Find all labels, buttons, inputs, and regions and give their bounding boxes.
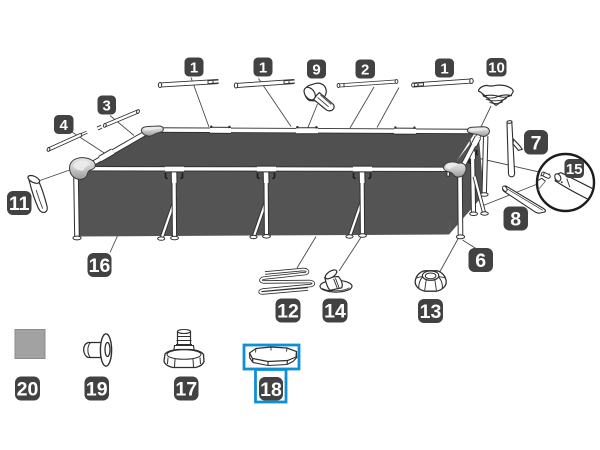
svg-text:1: 1 [190,59,198,76]
svg-text:16: 16 [89,255,111,277]
svg-text:20: 20 [17,379,39,401]
svg-text:9: 9 [312,61,320,78]
svg-text:10: 10 [488,60,505,77]
svg-text:11: 11 [9,193,30,215]
svg-text:18: 18 [260,379,282,401]
svg-text:7: 7 [531,132,542,154]
svg-text:4: 4 [60,117,69,134]
svg-text:6: 6 [475,250,486,272]
svg-text:2: 2 [361,61,369,78]
svg-text:19: 19 [86,379,108,401]
svg-text:1: 1 [259,59,267,76]
svg-text:14: 14 [324,301,346,323]
svg-text:8: 8 [510,209,521,231]
svg-text:12: 12 [277,301,299,323]
svg-text:15: 15 [566,161,583,178]
svg-text:17: 17 [175,379,197,401]
svg-text:13: 13 [420,301,442,323]
svg-text:3: 3 [103,97,111,114]
svg-text:1: 1 [440,60,448,77]
